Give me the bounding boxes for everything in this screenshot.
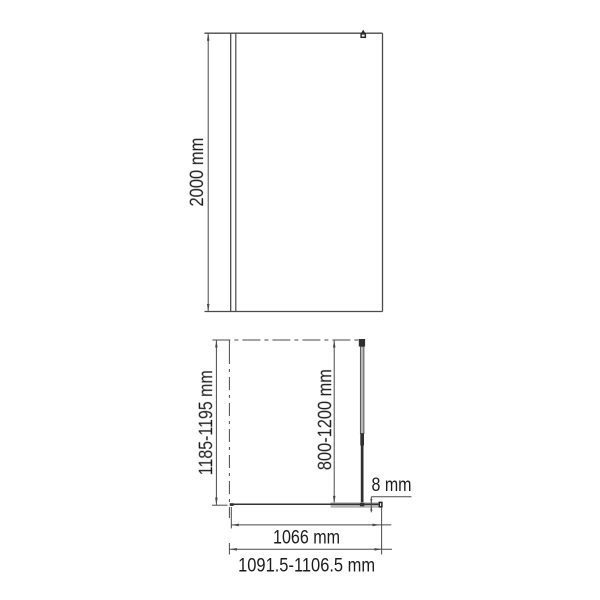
svg-text:800-1200 mm: 800-1200 mm <box>314 369 336 470</box>
svg-text:1066 mm: 1066 mm <box>273 526 340 548</box>
svg-text:1091.5-1106.5 mm: 1091.5-1106.5 mm <box>238 554 375 576</box>
svg-text:2000 mm: 2000 mm <box>186 138 208 207</box>
svg-text:1185-1195 mm: 1185-1195 mm <box>195 370 217 475</box>
svg-text:8 mm: 8 mm <box>372 474 412 496</box>
